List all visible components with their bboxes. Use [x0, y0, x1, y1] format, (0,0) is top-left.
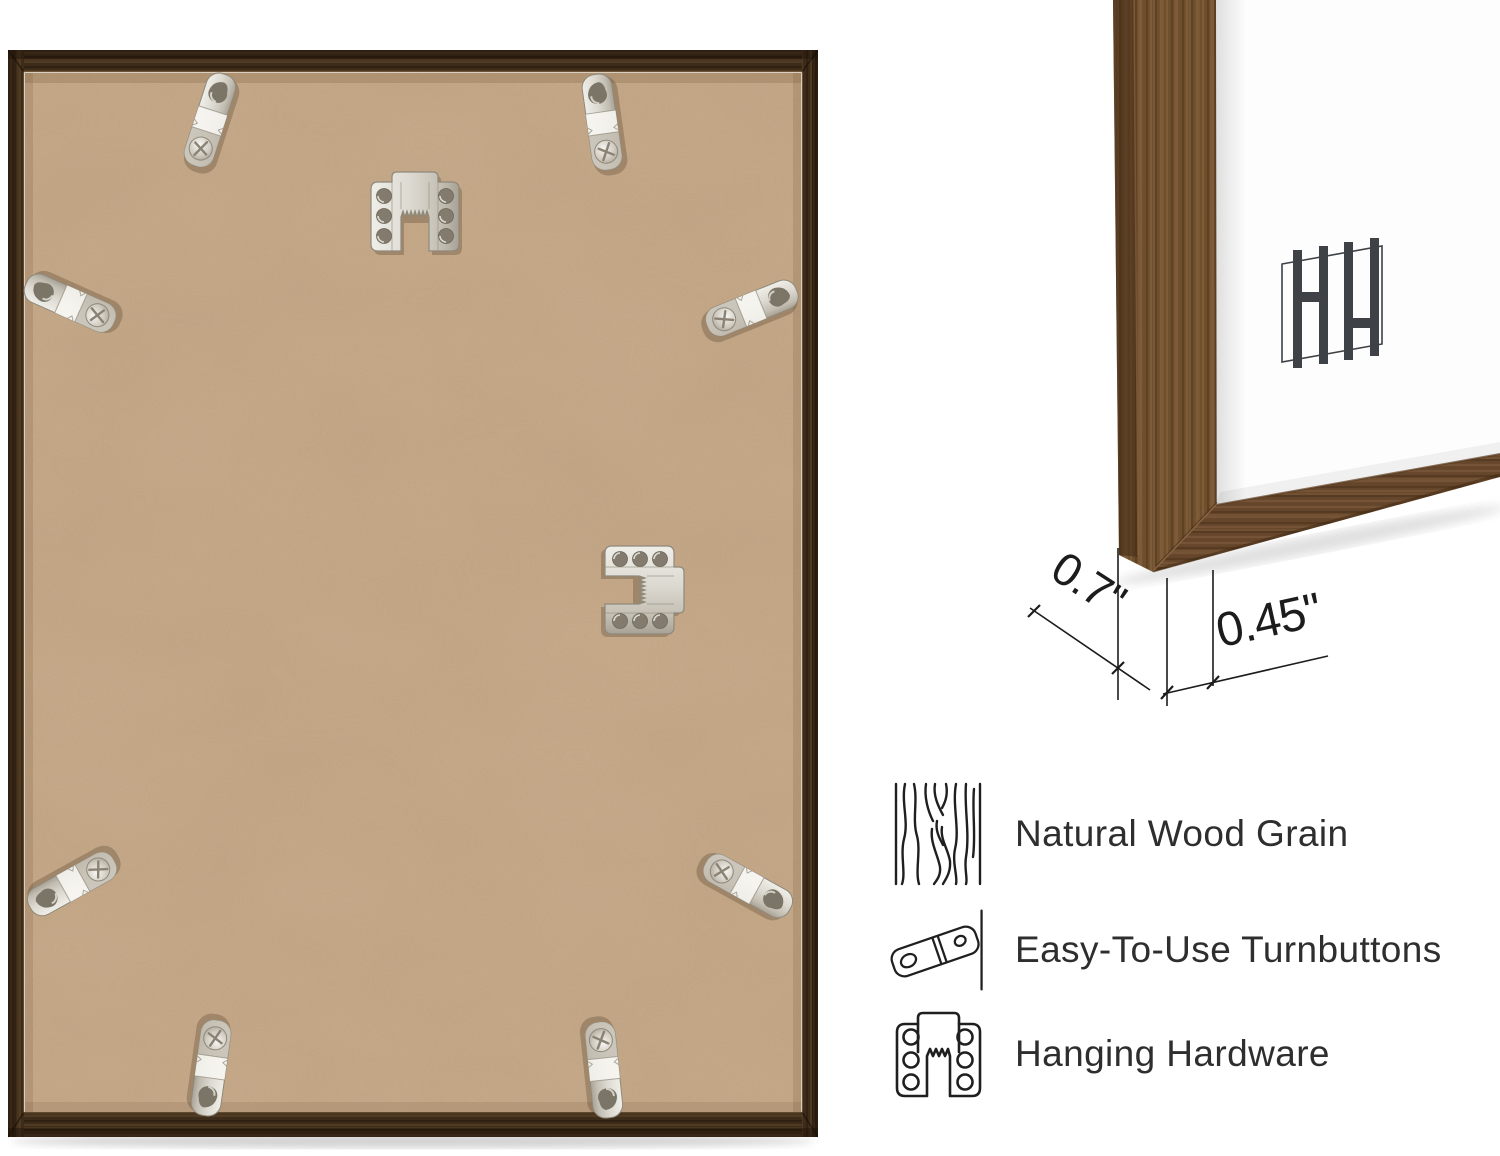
wood-grain-icon: [885, 781, 990, 887]
feature-row: Easy-To-Use Turnbuttons: [885, 904, 1442, 996]
feature-row: Hanging Hardware: [885, 1010, 1330, 1098]
feature-label: Natural Wood Grain: [1015, 813, 1349, 855]
dimension-line-depth: [1030, 608, 1150, 690]
frame-back-photo: [8, 50, 818, 1152]
dimension-line-face: [1163, 656, 1328, 694]
hanging-hardware-icon: [885, 1010, 990, 1098]
frame-corner-closeup: 0.7" 0.45": [1020, 0, 1500, 720]
feature-row: Natural Wood Grain: [885, 781, 1349, 887]
mat-board: [1216, 0, 1500, 505]
feature-label: Hanging Hardware: [1015, 1033, 1330, 1075]
feature-label: Easy-To-Use Turnbuttons: [1015, 929, 1442, 971]
dimension-face-width-label: 0.45": [1211, 584, 1325, 659]
product-infographic: { "closeup": { "depth_label": "0.7\"", "…: [0, 0, 1500, 1156]
turnbutton-icon: [885, 904, 990, 996]
dimension-ticks: [1028, 605, 1219, 699]
